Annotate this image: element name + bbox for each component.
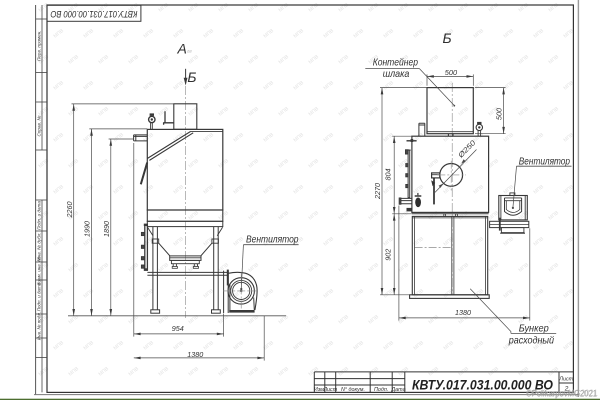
svg-text:Подп.: Подп.: [374, 387, 388, 393]
svg-text:1380: 1380: [187, 350, 203, 359]
svg-text:Подп. и дата: Подп. и дата: [36, 201, 41, 230]
svg-text:500: 500: [445, 68, 458, 77]
svg-text:Инв. № подл.: Инв. № подл.: [36, 312, 41, 341]
svg-text:расходный: расходный: [508, 335, 554, 347]
svg-text:1380: 1380: [455, 308, 471, 317]
svg-text:Бункер: Бункер: [519, 323, 549, 335]
svg-text:шлака: шлака: [383, 68, 410, 80]
svg-text:1890: 1890: [102, 221, 111, 237]
svg-text:Вентилятор: Вентилятор: [246, 233, 299, 245]
svg-text:А: А: [177, 41, 187, 57]
svg-text:Лист: Лист: [558, 376, 573, 382]
svg-text:КВТУ.017.031.00.000 ВО: КВТУ.017.031.00.000 ВО: [50, 8, 137, 19]
svg-text:954: 954: [172, 324, 184, 333]
svg-text:Б: Б: [187, 69, 196, 85]
svg-text:Взам. инв. №: Взам. инв. №: [36, 257, 41, 285]
svg-text:Б: Б: [443, 30, 452, 46]
svg-text:Дата: Дата: [390, 387, 405, 393]
svg-text:902: 902: [384, 249, 393, 261]
svg-text:2270: 2270: [373, 183, 382, 200]
svg-text:1990: 1990: [83, 221, 92, 237]
svg-text:804: 804: [384, 169, 393, 181]
svg-text:Справ. №: Справ. №: [36, 116, 41, 137]
svg-text:Лист: Лист: [322, 387, 337, 393]
svg-text:Инв. № дубл.: Инв. № дубл.: [36, 232, 41, 260]
svg-text:N° докум.: N° докум.: [341, 387, 365, 393]
svg-text:Контейнер: Контейнер: [373, 57, 418, 69]
svg-text:Подп. и дата: Подп. и дата: [36, 282, 41, 311]
svg-text:500: 500: [495, 107, 504, 120]
svg-text:Перв. примен.: Перв. примен.: [36, 30, 41, 61]
svg-text:Вентилятор: Вентилятор: [519, 155, 570, 167]
svg-text:©PolikarpovMG2021: ©PolikarpovMG2021: [527, 388, 598, 398]
svg-text:2260: 2260: [65, 202, 74, 219]
svg-text:гв: гв: [187, 48, 192, 53]
